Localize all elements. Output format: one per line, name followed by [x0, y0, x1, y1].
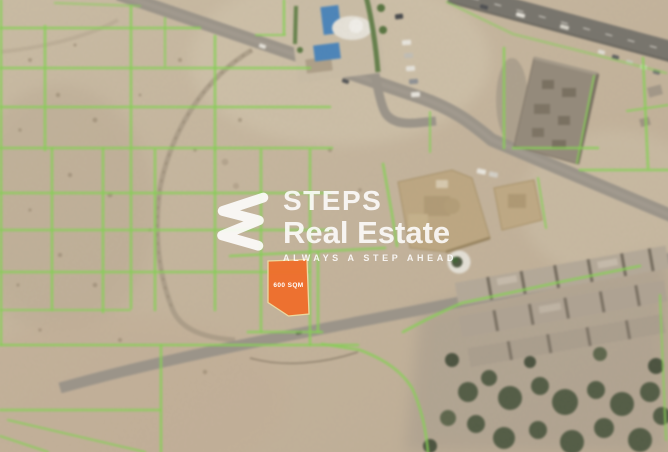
brand-name-bottom: Real Estate [283, 217, 457, 248]
satellite-listing-image: 600 SQM STEPS Real Estate ALWAYS A STEP … [0, 0, 668, 452]
brand-name-top: STEPS [283, 187, 457, 215]
steps-logo-icon [211, 191, 276, 254]
watermark-text: STEPS Real Estate ALWAYS A STEP AHEAD [283, 187, 457, 263]
watermark: STEPS Real Estate ALWAYS A STEP AHEAD [213, 187, 457, 263]
brand-tagline: ALWAYS A STEP AHEAD [283, 253, 457, 263]
plot-area-label: 600 SQM [266, 282, 311, 290]
